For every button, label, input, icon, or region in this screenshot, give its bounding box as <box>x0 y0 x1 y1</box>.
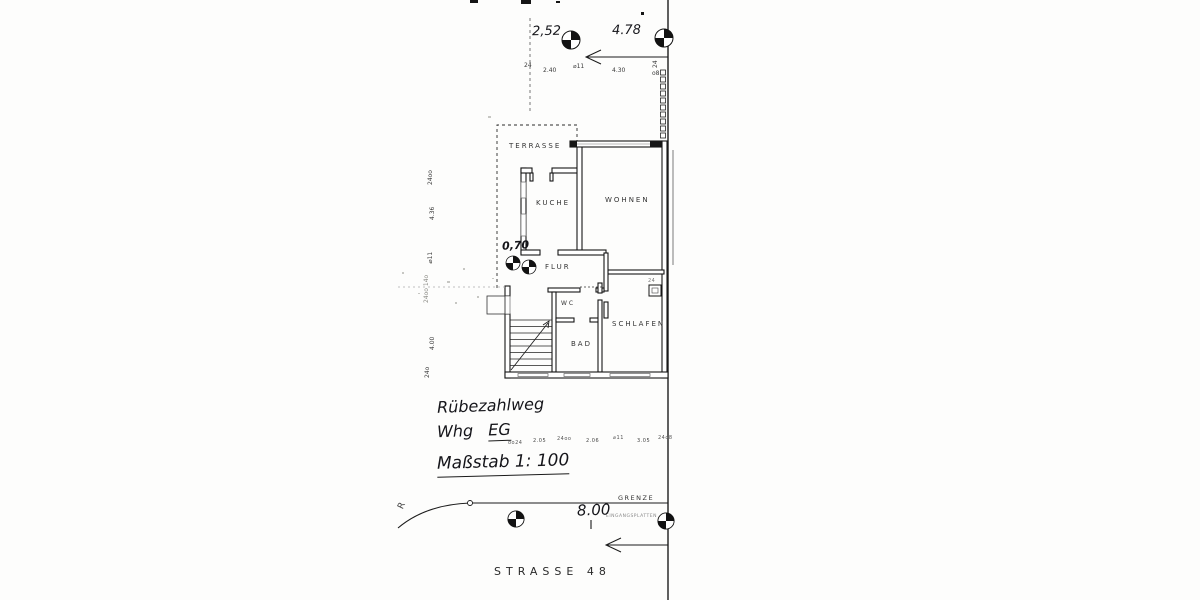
dimension-mid: 24o8 <box>658 435 673 441</box>
room-label-kueche: KUCHE <box>536 199 570 207</box>
staircase <box>510 320 552 370</box>
dimension-mid: 24oo <box>557 436 571 442</box>
speckle <box>488 116 491 118</box>
dimension-mid: 2.06 <box>586 438 599 444</box>
room-label-schlafen: SCHLAFEN <box>612 320 665 328</box>
survey-point-icon <box>655 29 673 47</box>
room-label-terrasse: TERRASSE <box>509 142 561 150</box>
grenze-label: GRENZE <box>618 494 654 502</box>
handwriting-scale-text: Maßstab 1: 100 <box>437 450 570 477</box>
dimension-left: 4.00 <box>429 337 436 350</box>
dimension-left: 24oo 14o <box>423 275 430 303</box>
grenze-sub-label: EINGANGSPLATTEN <box>606 514 657 519</box>
dimension-top-1: 2,52 <box>532 24 561 40</box>
room-label-wohnen: WOHNEN <box>605 196 650 204</box>
dimension-left: ⌀11 <box>427 252 434 263</box>
survey-point-icon <box>522 260 536 274</box>
dimension-mid: 3.05 <box>637 438 650 444</box>
dimension-left: 4.36 <box>429 207 436 220</box>
survey-point-icon <box>506 256 520 270</box>
handwriting-street: Rübezahlweg <box>437 394 545 417</box>
street-direction-arrow <box>606 538 668 552</box>
room-label-flur: FLUR <box>545 263 571 271</box>
handwriting-eg: EG <box>488 420 511 442</box>
survey-point-icon <box>658 513 674 529</box>
entrance-door <box>505 296 510 314</box>
survey-point-icon <box>562 31 580 49</box>
dimension-top-2: 4.78 <box>612 23 641 39</box>
handwriting-unit: Whg EG <box>437 420 511 442</box>
dimension-sub: ⌀11 <box>573 63 584 70</box>
dimension-mid: oo24 <box>508 440 522 446</box>
dimension-sub: 24 <box>652 60 659 68</box>
speckle <box>477 296 479 298</box>
dimension-mid: 2.05 <box>533 438 546 444</box>
scanned-floor-plan: 2,52 4.78 24 2.40 ⌀11 4.30 24 o8 24oo 4.… <box>0 0 1200 600</box>
handwriting-whg: Whg <box>437 421 474 441</box>
scan-artifacts <box>470 0 644 15</box>
speckle <box>455 302 457 304</box>
street-label: STRASSE 48 <box>494 565 611 578</box>
entrance-stoop <box>487 296 505 314</box>
speckle <box>463 268 465 270</box>
grenze-dimension: 8.00 <box>577 500 611 519</box>
dimension-left: 24o <box>424 367 431 378</box>
dimension-left: 24oo <box>427 170 434 185</box>
speckle <box>447 281 450 283</box>
dimension-sub: 24 <box>524 62 532 69</box>
dimension-sub: o8 <box>652 70 660 77</box>
room-label-bad: BAD <box>571 340 592 348</box>
dimension-070: 0,70 <box>502 238 530 252</box>
chimney-mark: 24 <box>648 278 655 284</box>
dimension-sub: 2.40 <box>543 67 556 74</box>
handwriting-scale: Maßstab 1: 100 <box>437 452 569 476</box>
speckle <box>402 272 404 274</box>
room-label-wc: WC <box>561 300 575 307</box>
survey-point-icon <box>508 511 524 527</box>
dimension-sub: 4.30 <box>612 67 625 74</box>
boundary-hatching <box>661 70 666 138</box>
speckle <box>418 293 420 294</box>
chimney-symbol <box>649 285 661 296</box>
speckle <box>492 278 494 279</box>
dimension-mid: ⌀11 <box>613 435 624 441</box>
